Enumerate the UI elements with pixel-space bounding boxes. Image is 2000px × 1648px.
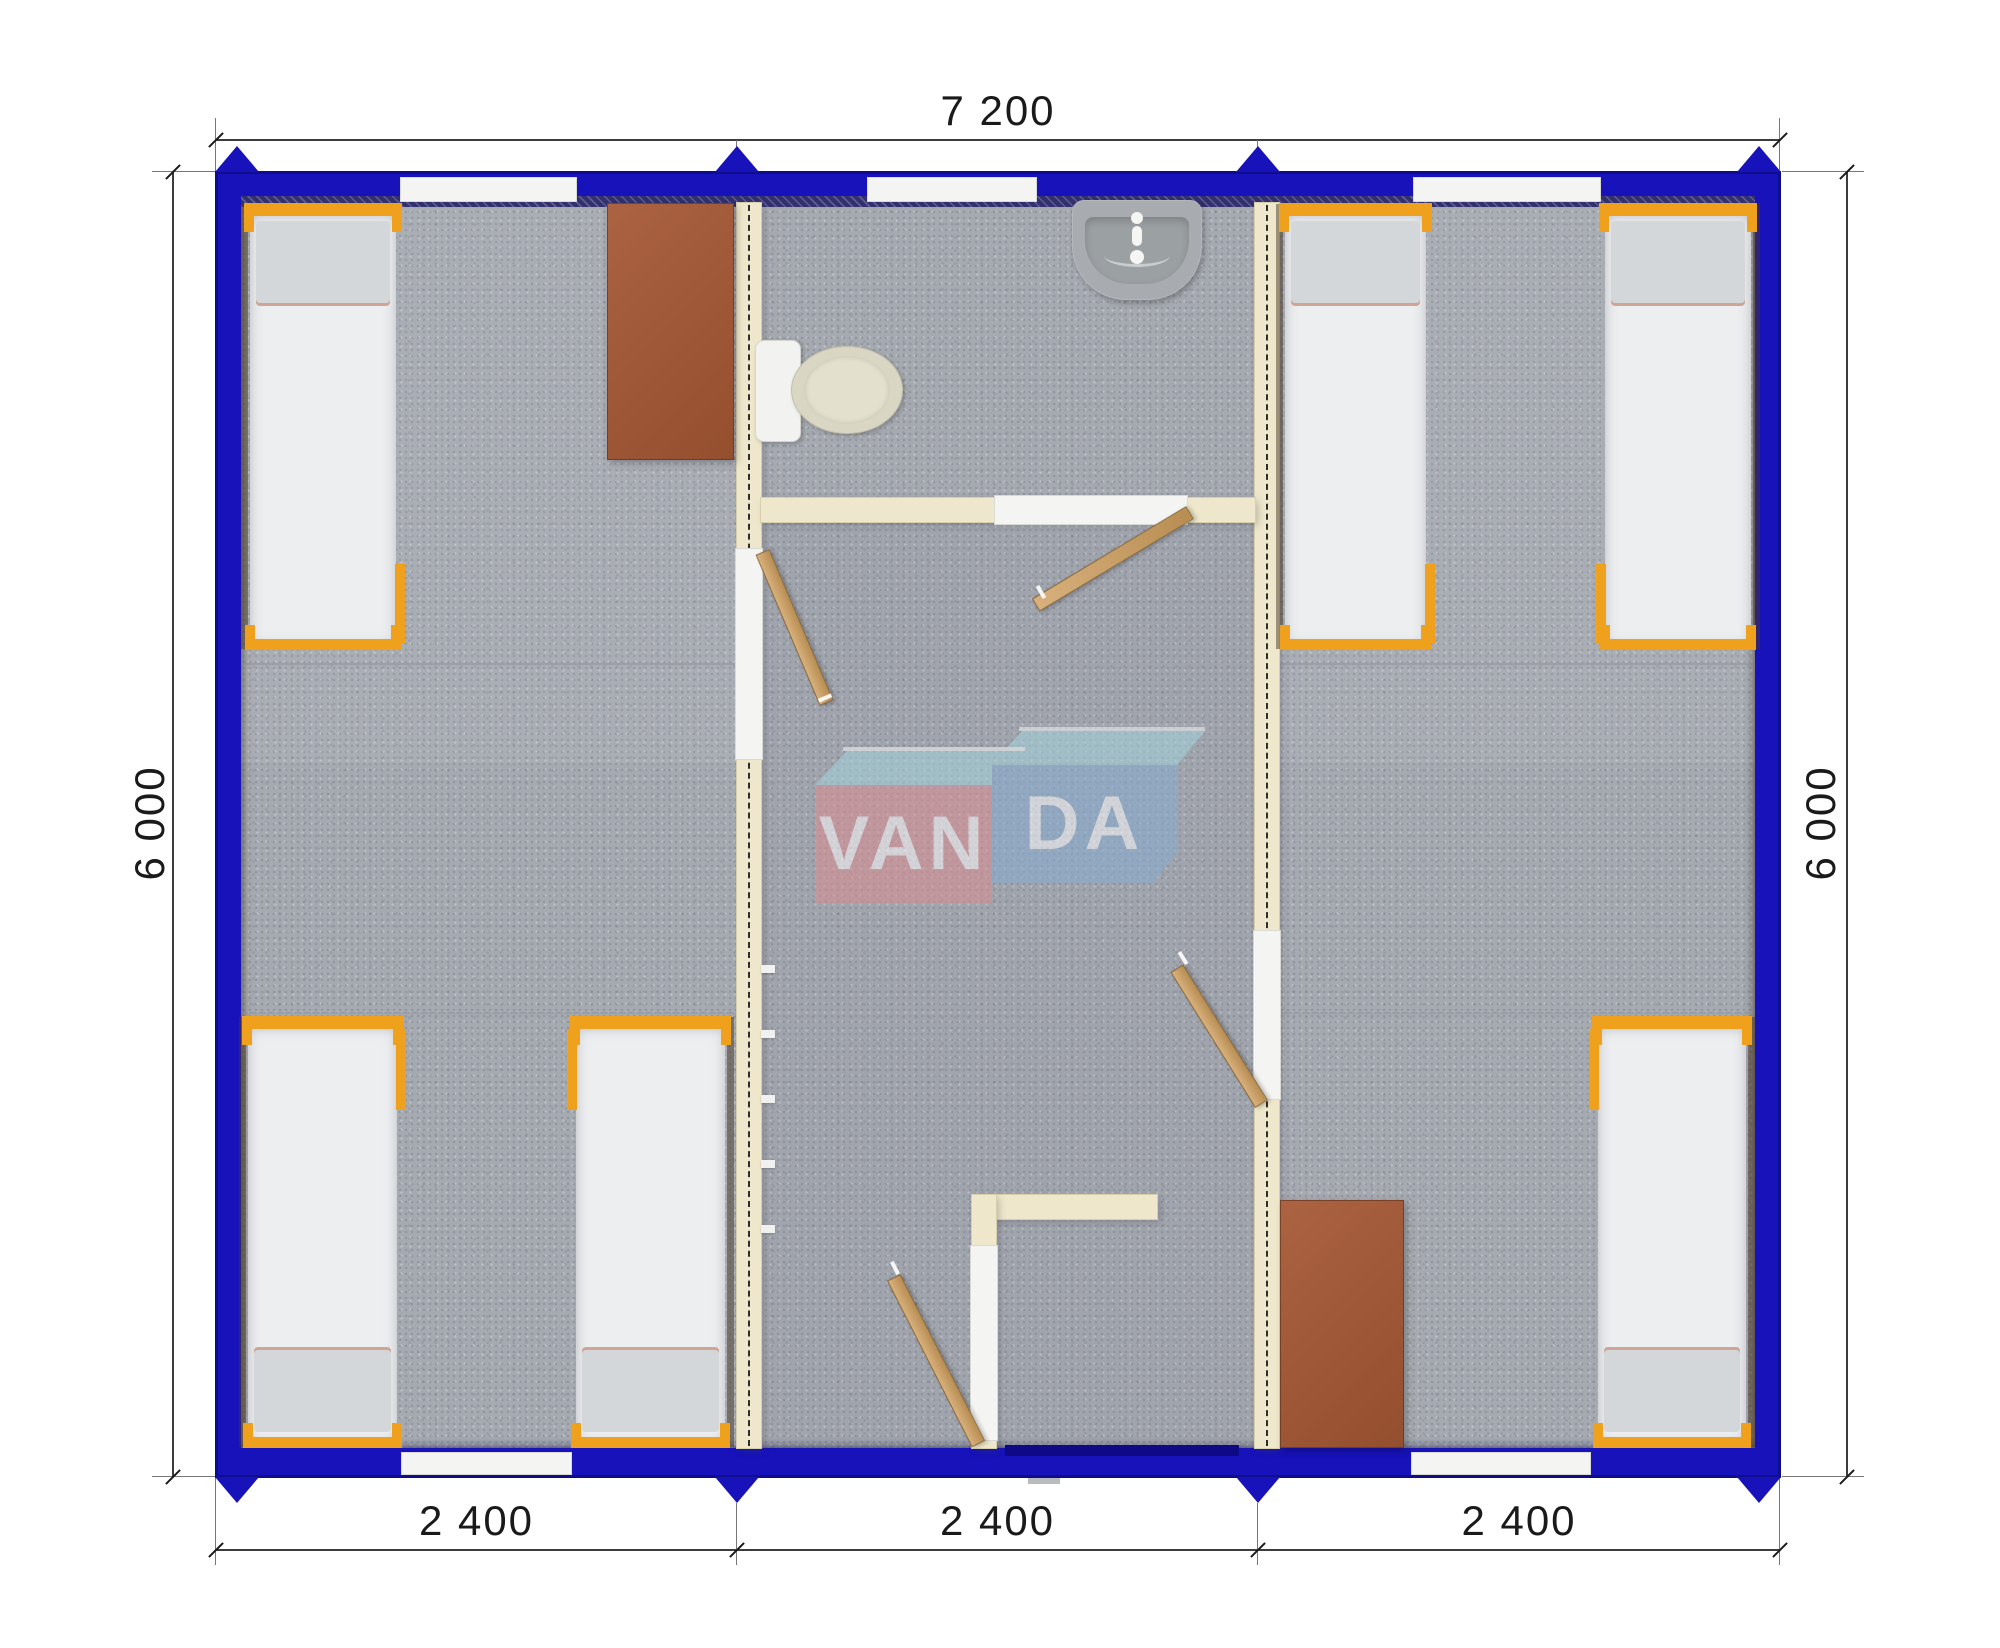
bed-frame-rail — [245, 639, 401, 650]
bed-frame-rail — [1589, 1030, 1599, 1110]
extension-line — [152, 171, 218, 172]
carpet-seam — [1279, 663, 1755, 665]
window — [1411, 1452, 1591, 1475]
bed-pillow — [1291, 221, 1420, 303]
bed — [1283, 203, 1428, 650]
dim-label-bottom-3: 2 400 — [1258, 1500, 1780, 1542]
bed-frame-rail — [1425, 564, 1435, 644]
module-marker — [715, 146, 759, 172]
bed-frame-rail — [1279, 203, 1432, 216]
bed-frame-rail — [1596, 564, 1606, 644]
vanda-watermark: VAN DA — [805, 726, 1205, 908]
door-opening — [735, 548, 763, 760]
extension-line — [1782, 1476, 1864, 1477]
wall-shelf-nub — [761, 965, 775, 973]
bed — [1596, 1016, 1748, 1448]
carpet-seam — [241, 1012, 737, 1014]
sink-faucet-icon — [1131, 212, 1143, 224]
bed-pillow — [1604, 1350, 1740, 1432]
carpet-seam — [1279, 1012, 1755, 1014]
bed-frame-rail — [243, 1437, 402, 1448]
door-opening — [970, 1245, 998, 1441]
bed-frame-rail — [1280, 639, 1431, 650]
bed-frame-rail — [242, 1016, 403, 1029]
extension-line — [1782, 171, 1864, 172]
module-marker — [1236, 1477, 1280, 1503]
entry-step — [1028, 1478, 1060, 1484]
door-opening — [994, 495, 1188, 525]
sink — [1072, 200, 1202, 300]
bed-frame-rail — [1593, 1437, 1751, 1448]
extension-line — [152, 1476, 218, 1477]
module-marker — [1737, 146, 1781, 172]
module-marker — [215, 146, 259, 172]
bed-frame-rail — [395, 564, 405, 644]
bed — [248, 203, 398, 650]
logo-edge-highlight — [843, 747, 1025, 751]
dimension-line-top — [216, 139, 1780, 141]
module-marker — [215, 1477, 259, 1503]
dim-label-top: 7 200 — [216, 90, 1780, 132]
dimension-line-left — [172, 172, 174, 1477]
module-marker — [1737, 1477, 1781, 1503]
dim-label-left: 6 000 — [129, 765, 171, 880]
bed-frame-rail — [1592, 1016, 1752, 1029]
bed-pillow — [1611, 221, 1745, 303]
wall-shelf-nub — [761, 1095, 775, 1103]
bed-frame-rail — [567, 1030, 577, 1110]
bed-frame-rail — [244, 203, 402, 216]
bed-pillow — [582, 1350, 719, 1432]
logo-edge-highlight — [1019, 727, 1205, 731]
dim-label-bottom-1: 2 400 — [216, 1500, 737, 1542]
toilet — [755, 336, 903, 446]
bed-frame-rail — [396, 1030, 406, 1110]
logo-block-red: VAN — [815, 785, 992, 903]
bed-pillow — [256, 221, 390, 303]
table-desk — [1280, 1200, 1404, 1448]
sink-drain-icon — [1130, 250, 1144, 264]
dimension-line-right — [1846, 172, 1848, 1477]
partition-right — [1255, 203, 1279, 1448]
window — [400, 177, 577, 202]
sink-faucet-icon — [1132, 226, 1142, 246]
wall-shelf-nub — [761, 1225, 775, 1233]
window — [1413, 177, 1601, 202]
vestibule-wall-horizontal — [972, 1195, 1157, 1219]
bed — [574, 1016, 727, 1448]
wall-shelf-nub — [761, 1030, 775, 1038]
window — [867, 177, 1037, 202]
bed — [1603, 203, 1753, 650]
wall-shelf-nub — [761, 1160, 775, 1168]
bed — [246, 1016, 399, 1448]
toilet-seat — [804, 356, 890, 424]
extension-line — [1257, 1503, 1258, 1565]
entry-door — [1005, 1445, 1239, 1456]
carpet-seam — [241, 663, 737, 665]
window — [401, 1452, 572, 1475]
module-marker — [1236, 146, 1280, 172]
door-opening — [1253, 930, 1281, 1100]
table-desk — [607, 203, 734, 460]
logo-block-blue: DA — [992, 765, 1177, 883]
logo-text-right: DA — [1025, 786, 1145, 862]
floor-plan-canvas: 7 200 6 000 6 000 2 400 2 400 2 400 — [0, 0, 2000, 1648]
bed-pillow — [254, 1350, 391, 1432]
dim-label-bottom-2: 2 400 — [737, 1500, 1258, 1542]
bed-frame-rail — [571, 1437, 730, 1448]
bed-frame-rail — [1600, 639, 1756, 650]
logo-text-left: VAN — [819, 806, 989, 882]
extension-line — [736, 1503, 737, 1565]
dim-label-right: 6 000 — [1800, 765, 1842, 880]
bed-frame-rail — [1599, 203, 1757, 216]
dimension-line-bottom — [216, 1549, 1780, 1551]
module-marker — [715, 1477, 759, 1503]
bed-frame-rail — [570, 1016, 731, 1029]
toilet-bowl — [791, 346, 903, 434]
